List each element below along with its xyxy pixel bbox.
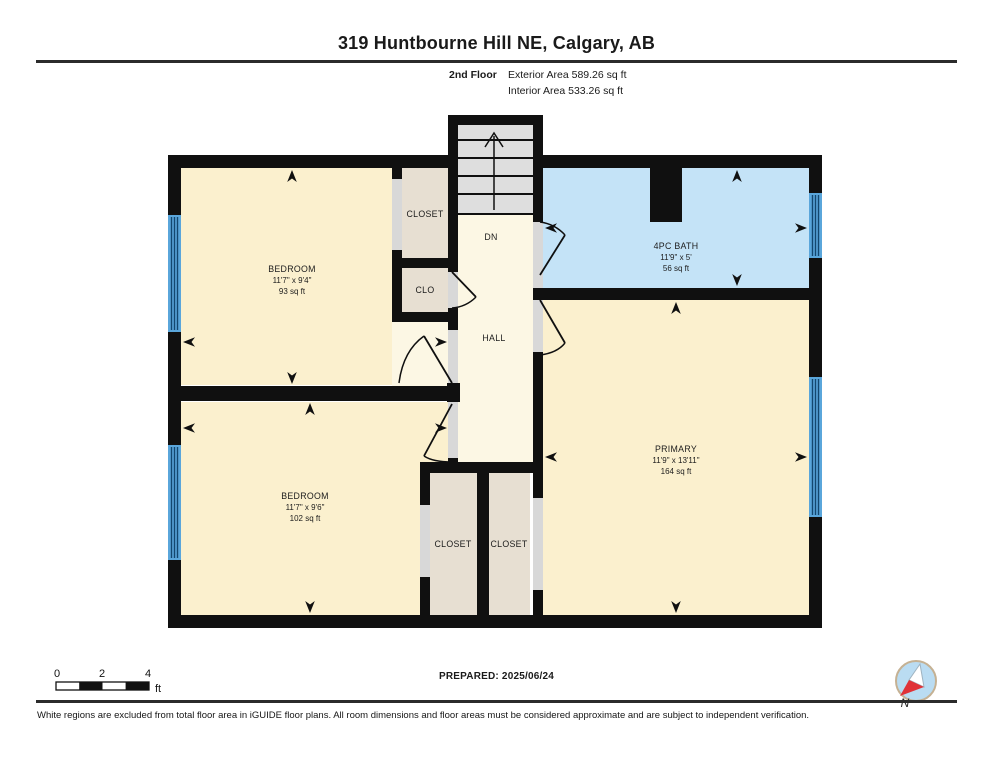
- stairwell: [458, 125, 533, 215]
- compass-north-label: N: [901, 696, 910, 710]
- svg-text:11'9" x 13'11": 11'9" x 13'11": [652, 456, 699, 465]
- label-bedroom-bottom: BEDROOM: [281, 491, 329, 501]
- label-bath: 4PC BATH: [654, 241, 699, 251]
- svg-text:11'7" x 9'6": 11'7" x 9'6": [286, 503, 325, 512]
- prepared-date: PREPARED: 2025/06/24: [0, 671, 993, 682]
- svg-text:ft: ft: [155, 683, 161, 695]
- label-primary: PRIMARY: [655, 444, 697, 454]
- svg-text:11'9" x 5': 11'9" x 5': [660, 253, 692, 262]
- svg-text:102 sq ft: 102 sq ft: [290, 514, 321, 523]
- label-bedroom-top: BEDROOM: [268, 264, 316, 274]
- floorplan-page: { "header": { "title": "319 Huntbourne H…: [0, 0, 993, 768]
- svg-text:164 sq ft: 164 sq ft: [661, 467, 692, 476]
- footer-divider: [36, 700, 957, 703]
- label-dn: DN: [484, 232, 497, 242]
- disclaimer-text: White regions are excluded from total fl…: [37, 710, 967, 721]
- label-closet-top: CLOSET: [407, 209, 444, 219]
- window-bath: [809, 193, 822, 258]
- label-closet-bottom-left: CLOSET: [435, 539, 472, 549]
- svg-text:93 sq ft: 93 sq ft: [279, 287, 306, 296]
- window-bedroom-top: [168, 215, 181, 332]
- window-bedroom-bottom: [168, 445, 181, 560]
- floorplan-drawing: BEDROOM 11'7" x 9'4" 93 sq ft CLOSET CLO…: [0, 0, 993, 768]
- label-closet-bottom-right: CLOSET: [491, 539, 528, 549]
- label-clo: CLO: [416, 285, 435, 295]
- svg-text:56 sq ft: 56 sq ft: [663, 264, 690, 273]
- svg-text:11'7" x 9'4": 11'7" x 9'4": [273, 276, 312, 285]
- window-primary: [809, 377, 822, 517]
- label-hall: HALL: [482, 333, 505, 343]
